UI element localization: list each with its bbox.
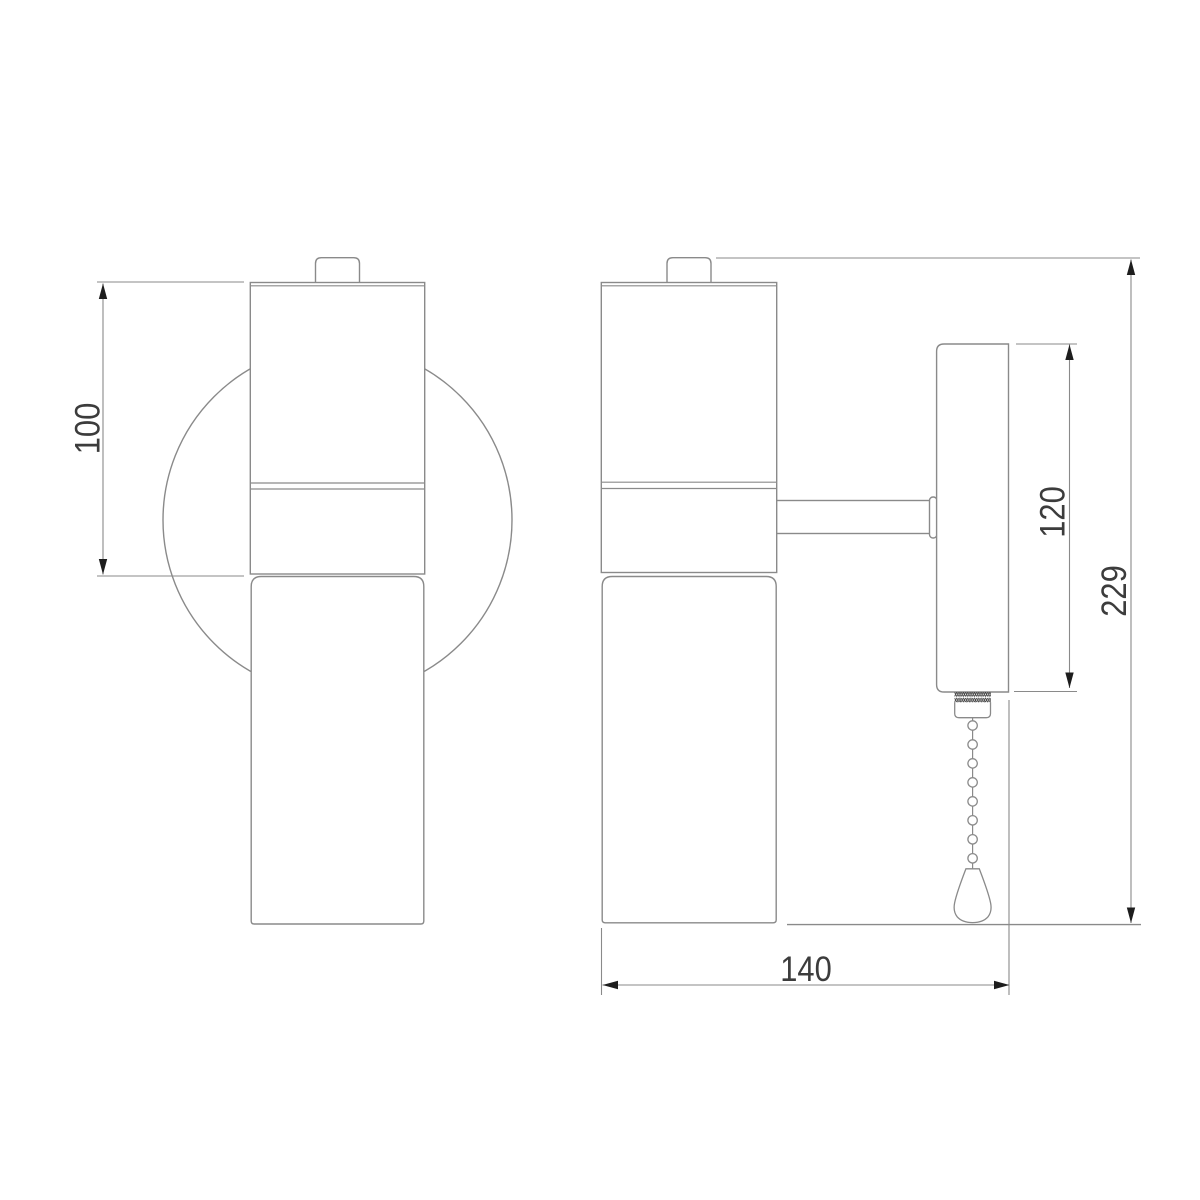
svg-text:229: 229 [1095,565,1134,617]
svg-text:120: 120 [1034,486,1073,538]
svg-text:140: 140 [780,950,832,989]
svg-text:100: 100 [69,403,108,455]
